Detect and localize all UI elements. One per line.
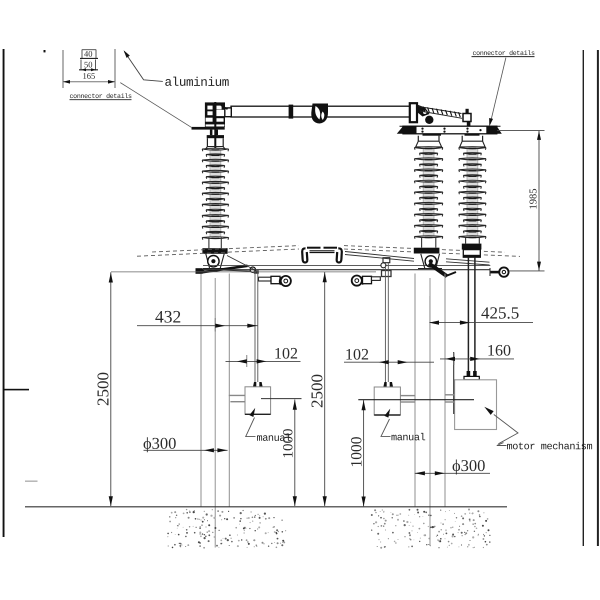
svg-text:aluminium: aluminium — [164, 76, 228, 90]
svg-text:2500: 2500 — [308, 374, 327, 408]
svg-text:40: 40 — [84, 49, 93, 59]
svg-text:1985: 1985 — [529, 189, 540, 210]
svg-text:connector details: connector details — [472, 50, 535, 57]
svg-text:165: 165 — [82, 71, 95, 81]
svg-text:connector details: connector details — [69, 93, 132, 100]
svg-text:50: 50 — [84, 59, 93, 69]
svg-text:ϕ300: ϕ300 — [143, 434, 176, 453]
svg-text:motor mechanism: motor mechanism — [506, 441, 592, 453]
svg-text:102: 102 — [345, 347, 369, 364]
svg-text:102: 102 — [274, 346, 298, 363]
svg-text:1000: 1000 — [349, 436, 366, 467]
svg-text:ϕ300: ϕ300 — [452, 456, 485, 475]
svg-text:manual: manual — [256, 433, 291, 445]
svg-text:2500: 2500 — [94, 372, 113, 406]
svg-text:425.5: 425.5 — [481, 304, 519, 323]
svg-text:160: 160 — [487, 343, 511, 360]
svg-text:432: 432 — [155, 307, 181, 327]
svg-text:manual: manual — [391, 432, 426, 444]
